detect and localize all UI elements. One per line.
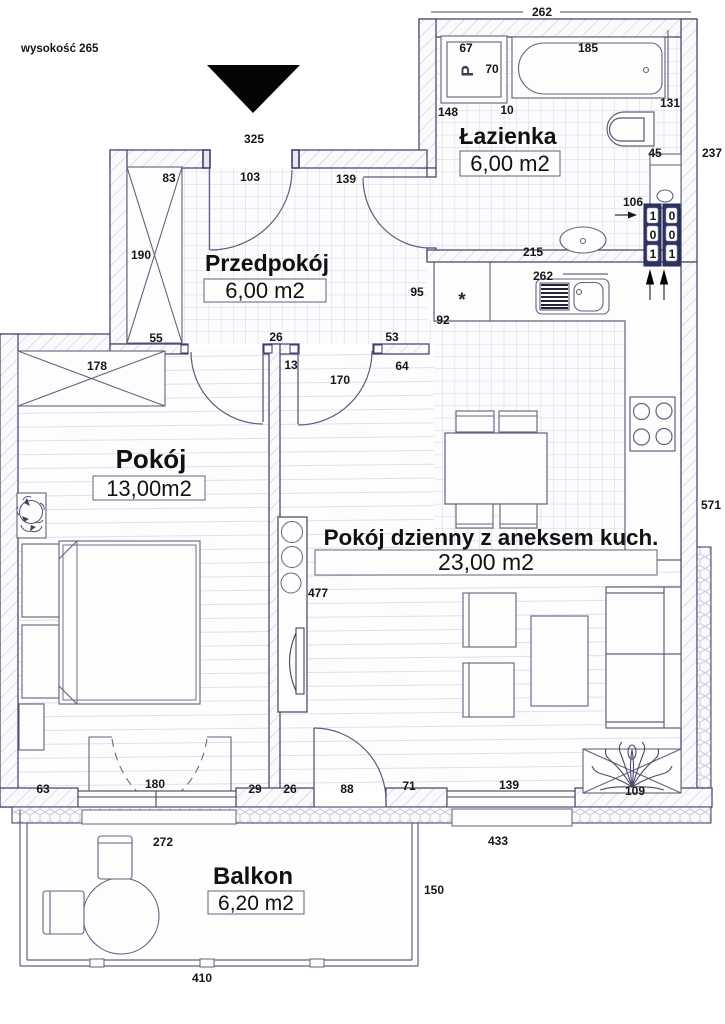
svg-text:106: 106 [623, 195, 643, 209]
svg-text:Balkon: Balkon [213, 863, 293, 890]
svg-text:70: 70 [485, 62, 499, 76]
svg-text:6,00 m2: 6,00 m2 [470, 151, 550, 176]
svg-text:45: 45 [648, 146, 662, 160]
svg-text:325: 325 [244, 132, 264, 146]
svg-text:0: 0 [669, 209, 676, 223]
svg-text:13,00m2: 13,00m2 [106, 476, 192, 501]
svg-text:67: 67 [459, 41, 473, 55]
svg-text:185: 185 [578, 41, 598, 55]
svg-text:1: 1 [650, 209, 657, 223]
svg-text:150: 150 [424, 883, 444, 897]
svg-text:wysokość 265: wysokość 265 [20, 43, 99, 55]
svg-text:262: 262 [533, 269, 553, 283]
svg-text:1: 1 [650, 247, 657, 261]
svg-text:Pokój dzienny z aneksem kuch.: Pokój dzienny z aneksem kuch. [324, 525, 659, 550]
svg-text:Przedpokój: Przedpokój [205, 250, 329, 276]
svg-text:64: 64 [395, 359, 409, 373]
svg-text:13: 13 [284, 358, 298, 372]
svg-text:0: 0 [669, 228, 676, 242]
svg-text:6,20 m2: 6,20 m2 [218, 892, 294, 915]
svg-text:55: 55 [149, 331, 163, 345]
svg-text:178: 178 [87, 359, 107, 373]
svg-text:83: 83 [162, 171, 176, 185]
svg-text:139: 139 [336, 172, 356, 186]
svg-text:272: 272 [153, 835, 173, 849]
svg-text:131: 131 [660, 96, 680, 110]
svg-text:63: 63 [36, 782, 50, 796]
svg-text:237: 237 [702, 146, 722, 160]
svg-text:*: * [458, 290, 466, 311]
svg-text:26: 26 [269, 330, 283, 344]
svg-text:148: 148 [438, 105, 458, 119]
svg-text:170: 170 [330, 373, 350, 387]
svg-text:92: 92 [436, 313, 450, 327]
svg-text:Pokój: Pokój [116, 444, 187, 474]
svg-text:P: P [458, 65, 477, 76]
svg-text:109: 109 [625, 784, 645, 798]
svg-text:262: 262 [532, 5, 552, 19]
svg-text:10: 10 [500, 103, 514, 117]
svg-text:29: 29 [248, 782, 262, 796]
svg-text:477: 477 [308, 586, 328, 600]
svg-text:215: 215 [523, 245, 543, 259]
svg-text:180: 180 [145, 777, 165, 791]
svg-text:190: 190 [131, 248, 151, 262]
svg-text:103: 103 [240, 170, 260, 184]
svg-text:6,00 m2: 6,00 m2 [225, 278, 305, 303]
svg-text:0: 0 [650, 228, 657, 242]
svg-text:26: 26 [283, 782, 297, 796]
svg-text:410: 410 [192, 971, 212, 985]
svg-text:433: 433 [488, 834, 508, 848]
svg-text:571: 571 [701, 498, 721, 512]
svg-text:23,00 m2: 23,00 m2 [438, 549, 534, 575]
svg-text:139: 139 [499, 778, 519, 792]
svg-text:1: 1 [669, 247, 676, 261]
svg-text:Łazienka: Łazienka [459, 123, 556, 149]
svg-text:71: 71 [402, 779, 416, 793]
svg-text:95: 95 [410, 285, 424, 299]
svg-text:88: 88 [340, 782, 354, 796]
svg-text:53: 53 [385, 330, 399, 344]
